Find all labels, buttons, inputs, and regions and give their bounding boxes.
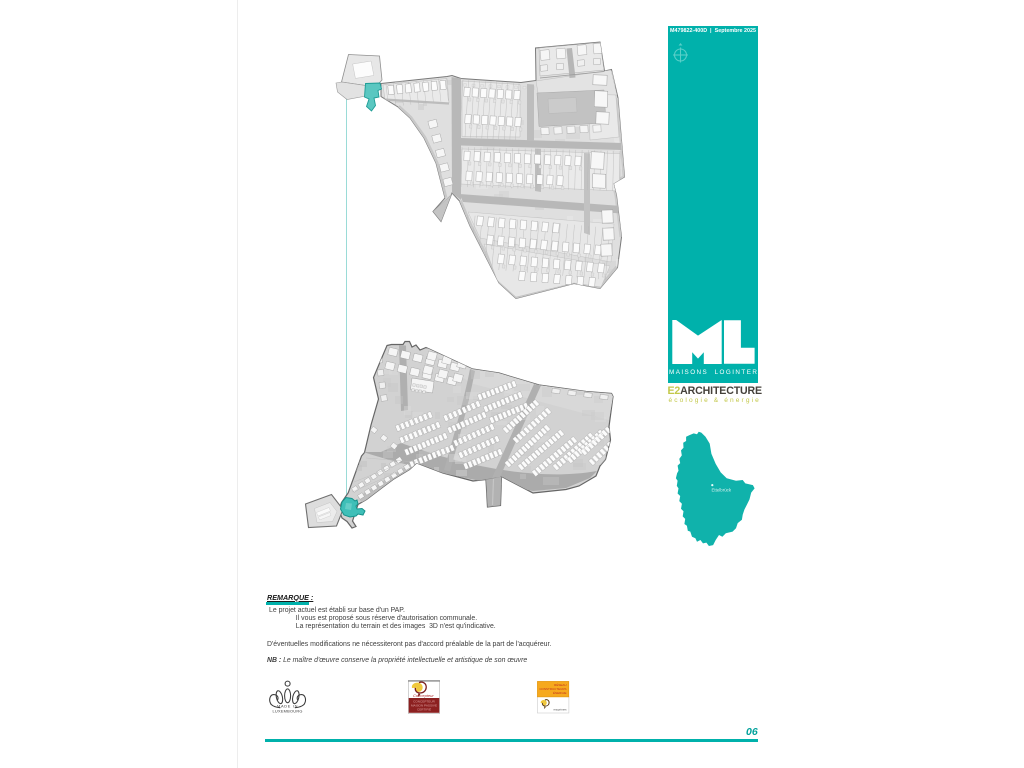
svg-text:LUXEMBOURG: LUXEMBOURG [273, 708, 303, 713]
svg-text:enoprimes: enoprimes [553, 708, 567, 712]
svg-text:ÉNERGIE: ÉNERGIE [553, 690, 567, 695]
svg-text:Ettelbrück: Ettelbrück [712, 488, 732, 493]
svg-text:Concepteur: Concepteur [413, 693, 434, 698]
svg-text:CERTIFIÉ: CERTIFIÉ [416, 707, 430, 712]
